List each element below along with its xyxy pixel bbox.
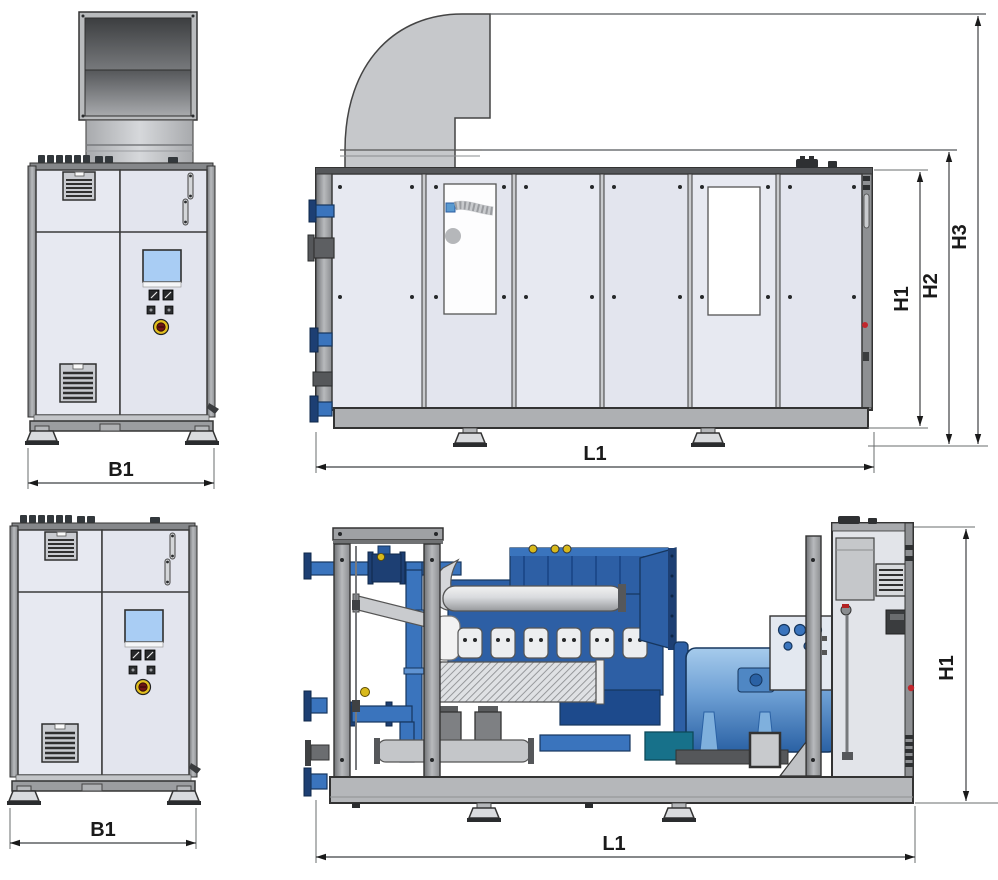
engine-valve-cap-icon (529, 545, 537, 553)
technical-drawing-chp-unit: B1 (0, 0, 998, 880)
dimension-h2: H2 (868, 152, 988, 446)
engine-valve-cap-icon (551, 545, 559, 553)
side-view-enclosed: H1 H2 H3 L1 (308, 14, 988, 473)
dimension-h1-bottom: H1 (914, 527, 998, 803)
exhaust-duct-side (340, 14, 986, 168)
enclosure-panel-3 (514, 174, 602, 408)
roof-fittings (796, 156, 837, 168)
gas-engine (426, 545, 668, 725)
dimension-l1-bottom: L1 (316, 800, 915, 863)
alert-lamp-icon (908, 685, 914, 691)
skid-foot-right (662, 803, 696, 822)
heat-exchanger (426, 660, 604, 704)
inspection-window-right (708, 187, 760, 315)
dimension-label-b1-bottom: B1 (90, 819, 116, 841)
onboard-control-cabinet (832, 516, 914, 790)
front-view-ducted: B1 (25, 12, 219, 489)
dimension-label-l1-top: L1 (583, 443, 606, 465)
exhaust-duct-front (79, 12, 197, 163)
dimension-label-h1-bottom: H1 (936, 655, 958, 681)
front-cabinet-ducted (25, 155, 219, 445)
enclosure (308, 156, 872, 447)
dimension-l1-top: L1 (316, 432, 874, 473)
skid-foot-left (467, 803, 501, 822)
dimension-label-l1-bottom: L1 (602, 833, 625, 855)
coupling-frame (750, 733, 780, 767)
engine-valve-cap-icon (563, 545, 571, 553)
enclosure-panel-1 (332, 174, 424, 408)
exhaust-pipe (443, 586, 623, 611)
dimension-label-h3: H3 (949, 224, 971, 250)
enclosure-roof-edge (316, 168, 872, 174)
enclosure-foot-right (691, 428, 725, 447)
side-view-open-genset: H1 L1 (304, 516, 998, 863)
front-cabinet-plain (7, 515, 201, 805)
valve-cap-icon (378, 554, 385, 561)
enclosure-base-rail (334, 408, 868, 428)
terminal-box (770, 616, 832, 690)
cabinet-louver-vent (876, 564, 906, 596)
front-view-plain: B1 (7, 515, 201, 849)
enclosure-panel-6 (778, 174, 862, 408)
dimension-label-b1-top: B1 (108, 459, 134, 481)
dimension-label-h2: H2 (920, 273, 942, 299)
dimension-h1-top: H1 (868, 170, 928, 428)
enclosure-foot-left (453, 428, 487, 447)
dimension-h3: H3 (949, 16, 978, 444)
alert-lamp-icon (862, 322, 868, 328)
dimension-label-h1-top: H1 (891, 286, 913, 312)
enclosure-panel-4 (602, 174, 690, 408)
skid-left-connectors (304, 553, 329, 796)
gauge-icon (361, 688, 370, 697)
base-skid (330, 777, 913, 808)
dimension-b1-bottom: B1 (10, 808, 196, 849)
dimension-b1-top: B1 (28, 448, 214, 489)
inspection-window-left (444, 184, 496, 314)
